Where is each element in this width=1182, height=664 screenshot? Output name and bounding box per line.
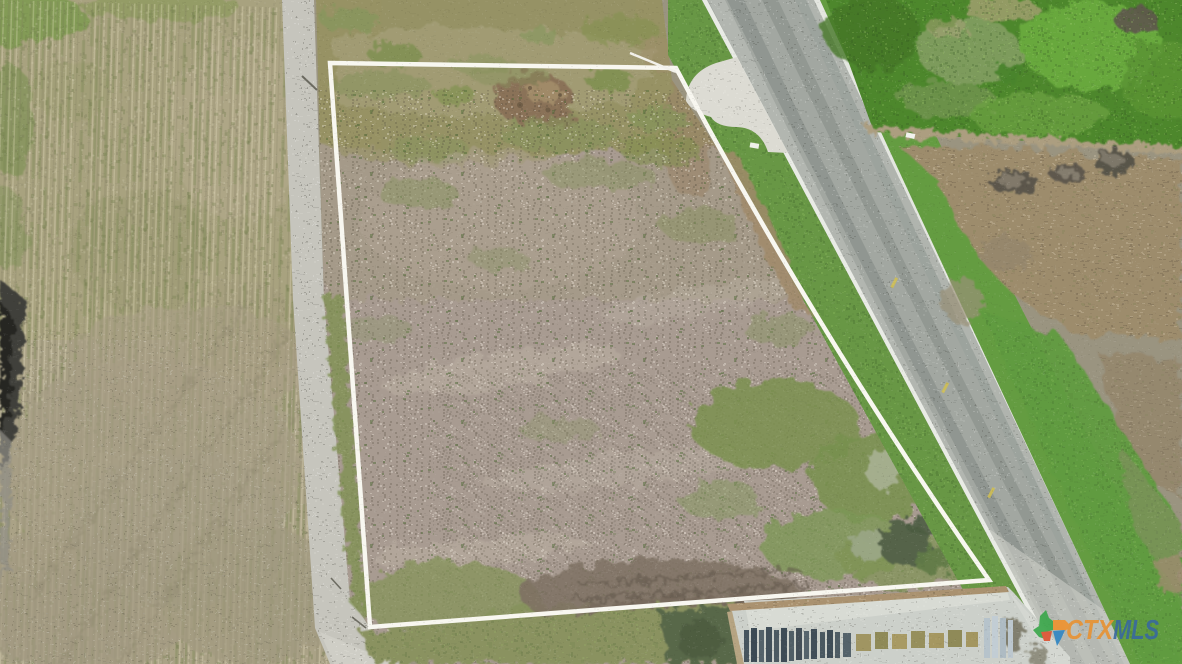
svg-text:CTX: CTX — [1066, 614, 1115, 645]
svg-text:MLS: MLS — [1113, 614, 1159, 645]
